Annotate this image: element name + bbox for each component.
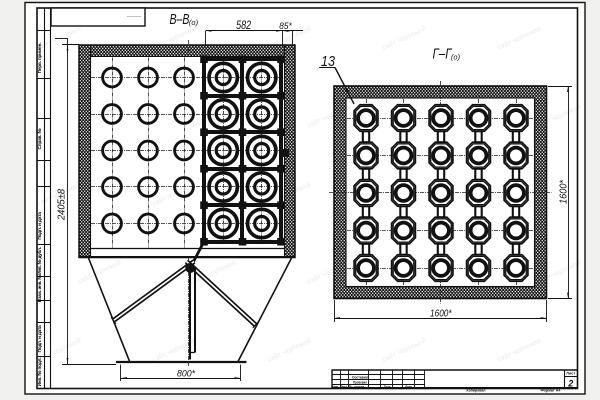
svg-text:582: 582 bbox=[236, 20, 251, 32]
svg-text:1600*: 1600* bbox=[559, 179, 570, 204]
svg-text:Инв. № дубл.: Инв. № дубл. bbox=[36, 247, 42, 274]
svg-text:№ докум.: № докум. bbox=[349, 384, 365, 389]
svg-text:(о): (о) bbox=[451, 53, 461, 62]
svg-text:Копировал: Копировал bbox=[467, 388, 487, 392]
svg-text:2405±8: 2405±8 bbox=[56, 189, 68, 221]
svg-text:Инв. № подл.: Инв. № подл. bbox=[37, 358, 43, 387]
svg-text:Дата: Дата bbox=[405, 384, 413, 389]
svg-text:Подп. и дата: Подп. и дата bbox=[37, 212, 43, 240]
svg-text:Взам. инв. №: Взам. инв. № bbox=[37, 275, 42, 302]
svg-text:Лист: Лист bbox=[566, 372, 575, 376]
svg-text:В–В: В–В bbox=[170, 12, 190, 28]
svg-text:Лист: Лист bbox=[340, 384, 347, 389]
svg-text:Изм.: Изм. bbox=[333, 384, 340, 389]
svg-text:Перв. примен.: Перв. примен. bbox=[37, 43, 43, 74]
svg-text:(о): (о) bbox=[189, 18, 199, 27]
svg-text:1600*: 1600* bbox=[430, 309, 452, 320]
svg-text:2: 2 bbox=[567, 379, 573, 389]
svg-text:Составил: Составил bbox=[352, 376, 369, 380]
svg-text:Формат А4: Формат А4 bbox=[541, 388, 562, 392]
svg-text:Г–Г: Г–Г bbox=[433, 47, 453, 63]
svg-text:Подп. и дата: Подп. и дата bbox=[37, 325, 43, 353]
svg-text:Подп.: Подп. bbox=[384, 384, 391, 389]
svg-text:Справ. №: Справ. № bbox=[37, 129, 43, 150]
svg-text:800*: 800* bbox=[177, 369, 195, 379]
svg-text:85*: 85* bbox=[279, 21, 292, 31]
